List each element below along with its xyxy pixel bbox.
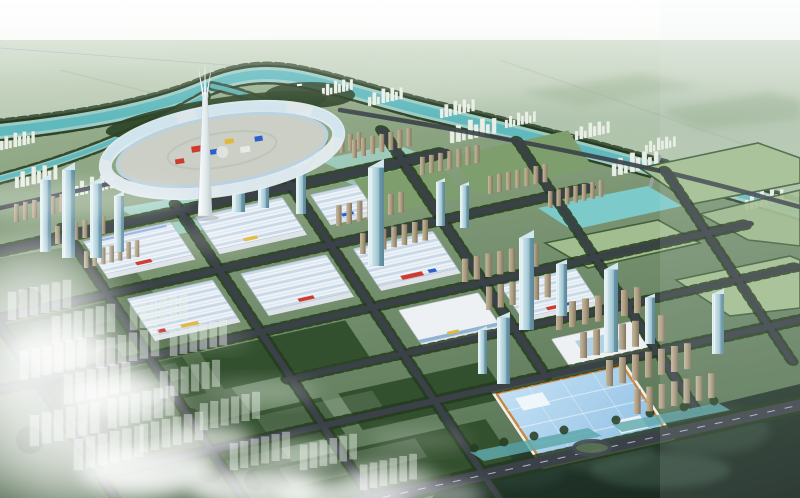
city-rendering-canvas bbox=[0, 0, 800, 498]
glass-tower bbox=[645, 294, 655, 344]
canal-tree bbox=[500, 438, 509, 447]
roundabout bbox=[574, 441, 610, 455]
haze-wisp bbox=[200, 382, 320, 402]
glass-tower bbox=[497, 312, 510, 384]
cloud-puff bbox=[260, 441, 340, 469]
haze-wisp bbox=[370, 431, 470, 449]
glass-tower bbox=[436, 178, 445, 226]
cloud-puff bbox=[10, 328, 110, 372]
glass-tower bbox=[519, 230, 534, 330]
canal-tree bbox=[560, 426, 569, 435]
aerial-masterplan-rendering bbox=[0, 0, 800, 498]
cloud-puff bbox=[157, 424, 253, 456]
glass-tower bbox=[478, 326, 487, 374]
glass-tower bbox=[604, 262, 618, 352]
glass-tower bbox=[556, 259, 567, 316]
canal-tree bbox=[612, 416, 621, 425]
glass-tower bbox=[460, 182, 469, 228]
canal-tree bbox=[470, 444, 479, 453]
haze-wisp bbox=[170, 332, 250, 348]
glass-tower bbox=[368, 159, 384, 266]
cloud-puff bbox=[65, 375, 175, 415]
canal-tree bbox=[530, 432, 539, 441]
right-edge-haze bbox=[660, 0, 800, 498]
haze-wisp bbox=[100, 228, 260, 252]
